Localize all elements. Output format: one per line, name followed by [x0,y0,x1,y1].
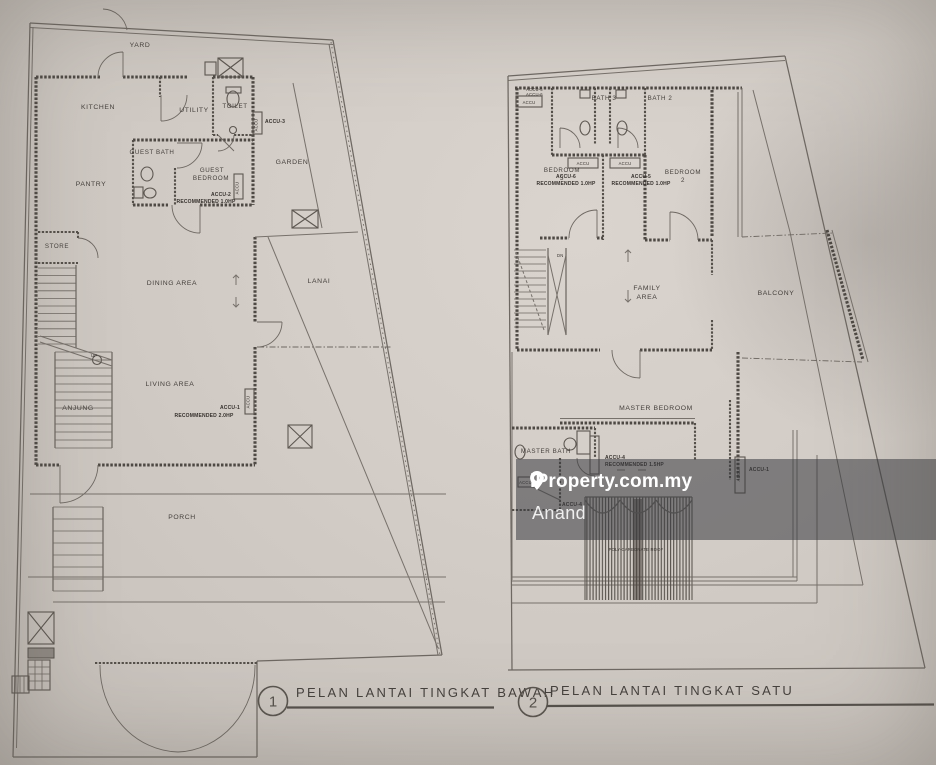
room-label-bedroom2: BEDROOM [665,169,701,176]
floorplan-drawing: YARD KITCHEN UTILITY TOILET GUEST BATH G… [0,0,936,765]
room-label-utility: UTILITY [179,107,209,114]
room-label-guest-bedroom: GUEST [200,167,224,174]
accu6-recommended-label: RECOMMENDED 1.0HP [537,181,596,187]
room-label-pantry: PANTRY [76,181,107,188]
room-label-balcony: BALCONY [758,290,795,297]
room-label-garden: GARDEN [276,159,309,166]
watermark-brand-text: iProperty.com.my [530,471,692,493]
room-label-anjung: ANJUNG [62,405,94,412]
accu-box-label: ACCU [246,396,251,409]
accu-box-label: ACCU [523,100,536,105]
room-label-porch: PORCH [168,514,196,521]
room-label-guest-bath: GUEST BATH [130,149,175,156]
ground-floor-plan: YARD KITCHEN UTILITY TOILET GUEST BATH G… [12,9,446,757]
accu6-label: ACCU-6 [556,174,576,180]
room-label-bath3: BATH 3 [592,95,617,102]
accu-box-label: ACCU [254,119,259,132]
room-label-master-bedroom: MASTER BEDROOM [619,405,693,412]
staircase [514,248,566,335]
plan-titles: 1 PELAN LANTAI TINGKAT BAWAH 2 PELAN LAN… [259,683,935,717]
lot-boundary [508,56,925,670]
lot-boundary [13,23,442,757]
room-label-master-bath: MASTER BATH [521,448,571,455]
accu2-label: ACCU-2 [211,192,231,198]
accu-corner-label: ACCU-6 [526,92,543,97]
room-label-bedroom3: BEDROOM [544,167,580,174]
poly-roof-label: POLY-CARBONATE ROOF [609,547,664,552]
room-label-bath2: BATH 2 [648,95,673,102]
accu5-recommended-label: RECOMMENDED 1.0HP [612,181,671,187]
title-number-2: 2 [529,695,537,712]
plan-title-ground: PELAN LANTAI TINGKAT BAWAH [296,685,555,700]
accu-box-label: ACCU [619,161,632,166]
plan-title-first: PELAN LANTAI TINGKAT SATU [550,683,794,698]
room-label-toilet: TOILET [222,103,247,110]
room-label-lanai: LANAI [308,278,331,285]
title-number-1: 1 [269,694,277,711]
porch-lines [28,232,446,602]
room-label-yard: YARD [130,42,151,49]
watermark-username: Anand [532,503,586,524]
room-label-family: AREA [637,294,658,301]
accu-box-label: ACCU [577,161,590,166]
accu1-recommended-label: RECOMMENDED 2.0HP [175,413,234,419]
room-label-living: LIVING AREA [146,381,195,388]
staircase [38,265,112,448]
first-floor-plan: BATH 3 BATH 2 BEDROOM 3 BEDROOM 2 FAMILY… [508,56,925,670]
accu-box-label: ACCU [235,182,240,195]
accu5-label: ACCU-5 [631,174,651,180]
accu1-label: ACCU-1 [220,405,240,411]
room-label-store: STORE [45,243,69,250]
accu2-recommended-label: RECOMMENDED 1.0HP [177,199,236,205]
watermark-band: iProperty.com.my Anand [516,459,936,540]
room-labels: YARD KITCHEN UTILITY TOILET GUEST BATH G… [45,42,330,521]
accu3-label: ACCU-3 [265,119,285,125]
room-label-bedroom2: 2 [681,177,685,184]
room-label-dining: DINING AREA [147,280,197,287]
watermark-brand: iProperty.com.my [530,471,692,493]
room-label-guest-bedroom: BEDROOM [193,175,229,182]
title-underline-2 [547,705,934,707]
walls [36,77,257,663]
room-label-family: FAMILY [633,285,660,292]
floorplan-photo: YARD KITCHEN UTILITY TOILET GUEST BATH G… [0,0,936,765]
map-pin-icon [530,471,544,490]
room-label-kitchen: KITCHEN [81,104,115,111]
stair-up-label: UP [91,353,97,358]
stair-down-label: DN [557,253,563,258]
